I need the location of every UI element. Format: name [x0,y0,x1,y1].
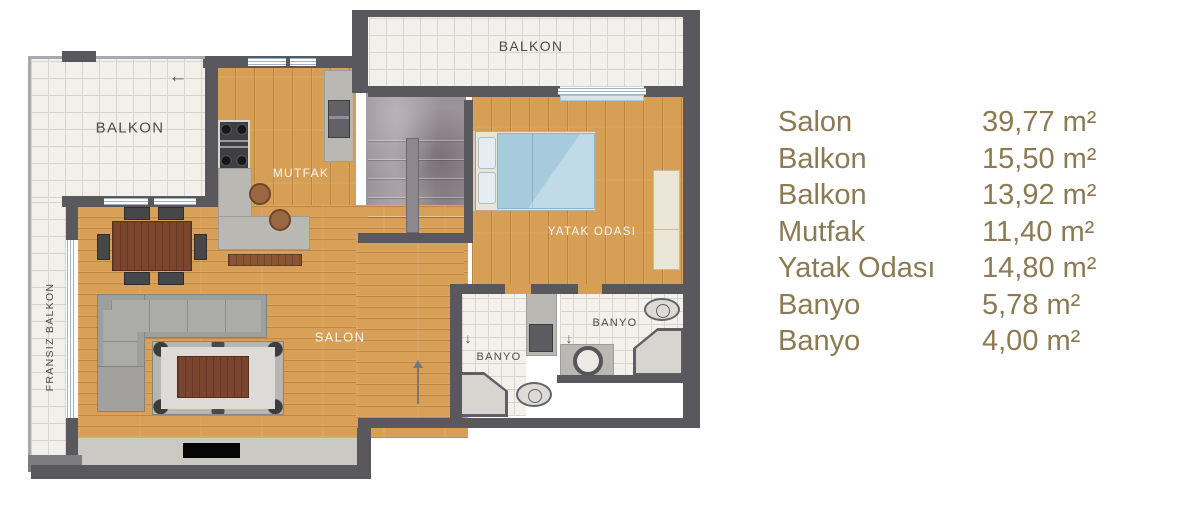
wall [368,86,560,97]
balcony-railing [28,56,31,458]
door-opening [505,284,531,294]
door-leaf [417,368,419,404]
window-kitchen [290,58,316,66]
corridor-floor [356,237,464,418]
wall [205,56,218,207]
legend-row: Balkon 13,92 m² [778,177,1178,214]
door-swing-arrow-icon: ↓ [566,330,573,346]
room-label-bedroom: YATAK ODASI [548,226,636,238]
kitchen-sink [328,100,350,138]
door-opening [578,284,602,294]
toilet-bowl [528,389,542,403]
entry-arrow-icon: ← [169,66,188,88]
wall [358,233,472,243]
rug-center [177,356,249,398]
door-swing-arrow-icon: ↓ [465,330,472,346]
wall [352,13,368,93]
bed-pillow [478,172,496,204]
toilet-bowl [656,304,670,318]
bath-cabinet-door [529,324,553,352]
kitchen-sideboard [228,254,302,266]
wall [450,284,700,294]
area-legend: Salon 39,77 m² Balkon 15,50 m² Balkon 13… [778,104,1178,360]
window-salon-balcony [104,198,148,205]
legend-room-area: 5,78 m² [982,287,1080,324]
door-leaf-arrow-icon [413,360,423,368]
legend-row: Salon 39,77 m² [778,104,1178,141]
toilet-right-bath [644,298,680,321]
tv [183,443,240,458]
wall [352,10,700,17]
legend-room-name: Yatak Odası [778,252,935,284]
room-label-bath-left: BANYO [476,351,521,363]
void-area [562,380,683,418]
dining-chair [124,272,150,285]
legend-room-area: 15,50 m² [982,141,1096,178]
legend-room-name: Banyo [778,289,860,321]
wall [66,196,78,240]
bar-stool [269,209,291,231]
floor-plan: BALKON BALKON MUTFAK YATAK ODASI SALON B… [0,0,760,507]
legend-row: Mutfak 11,40 m² [778,214,1178,251]
wall [464,100,473,243]
room-label-bath-right: BANYO [592,317,637,329]
sofa-chaise [97,366,145,412]
legend-room-name: Banyo [778,325,860,357]
window-salon-balcony [154,198,196,205]
legend-room-area: 13,92 m² [982,177,1096,214]
bed-pillow [478,137,496,169]
legend-room-area: 14,80 m² [982,250,1096,287]
window-balcony-top [558,88,646,95]
bed-duvet [497,133,595,209]
wall [62,51,96,62]
legend-row: Banyo 4,00 m² [778,323,1178,360]
dining-chair [124,207,150,220]
toilet-left-bath [516,382,552,407]
legend-row: Banyo 5,78 m² [778,287,1178,324]
wall [557,375,684,383]
bedroom-radiator [560,95,644,101]
kitchen-counter-vertical [218,168,252,220]
room-label-balcony-top: BALKON [499,38,564,54]
balcony-railing [28,56,206,59]
wardrobe [653,170,680,270]
wall [683,10,700,428]
window-french-balcony [67,240,75,418]
wall [357,428,371,479]
stove [218,120,250,170]
legend-row: Balkon 15,50 m² [778,141,1178,178]
wall [450,284,462,428]
bar-stool [249,183,271,205]
legend-room-area: 11,40 m² [982,214,1094,251]
window-kitchen [248,58,286,66]
dining-chair [158,272,184,285]
kitchen-counter-horizontal [218,216,310,250]
dining-chair [194,234,207,260]
room-label-french-balcony: FRANSIZ BALKON [44,283,56,392]
legend-room-name: Balkon [778,143,867,175]
legend-room-area: 4,00 m² [982,323,1080,360]
dining-table [112,221,192,271]
room-label-kitchen: MUTFAK [273,166,329,180]
dining-chair [97,234,110,260]
legend-row: Yatak Odası 14,80 m² [778,250,1178,287]
wall [644,86,683,97]
room-label-balcony-left: BALKON [96,120,165,137]
stairs-stringer [406,138,419,233]
room-label-salon: SALON [315,330,366,345]
wall [31,465,361,479]
legend-room-name: Balkon [778,179,867,211]
dining-chair [158,207,184,220]
legend-room-name: Salon [778,106,852,138]
floorplan-page: BALKON BALKON MUTFAK YATAK ODASI SALON B… [0,0,1200,507]
legend-room-area: 39,77 m² [982,104,1096,141]
wall [358,418,700,428]
legend-room-name: Mutfak [778,216,865,248]
bath-sink-basin [573,346,603,376]
